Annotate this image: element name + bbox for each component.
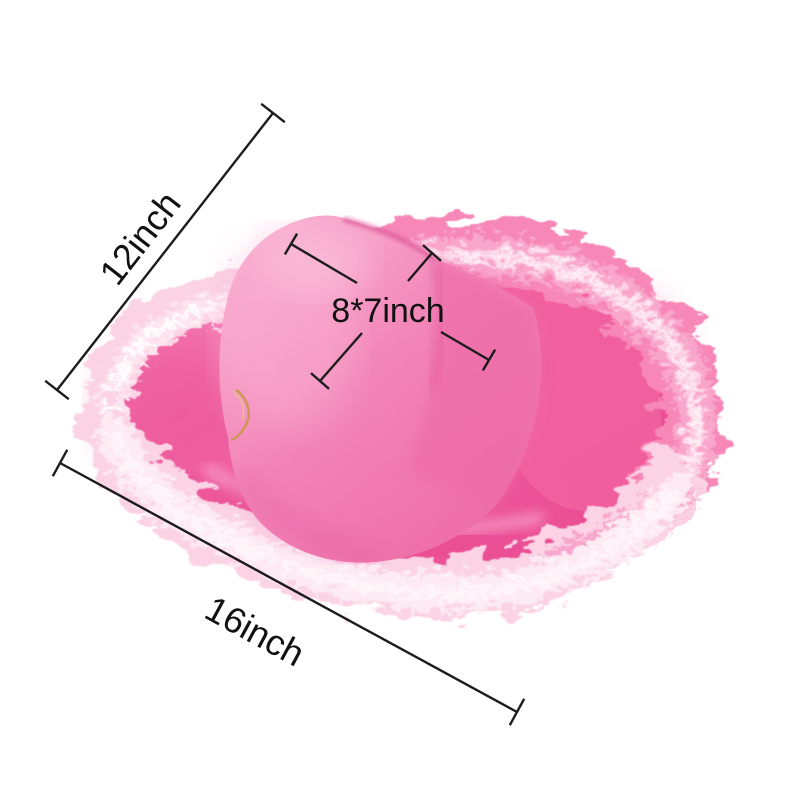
dimension-tick: [53, 450, 67, 476]
pink-cowboy-hat: [96, 216, 690, 589]
dimension-tick: [510, 699, 524, 725]
dimension-tick: [45, 381, 69, 399]
dimension-label-crown: 8*7inch: [331, 292, 444, 330]
dimension-label-16inch: 16inch: [199, 588, 312, 675]
product-image: 12inch 16inch 8*7inch: [0, 0, 800, 800]
dimension-tick: [261, 104, 285, 122]
hat-dimension-illustration: 12inch 16inch 8*7inch: [0, 0, 800, 800]
